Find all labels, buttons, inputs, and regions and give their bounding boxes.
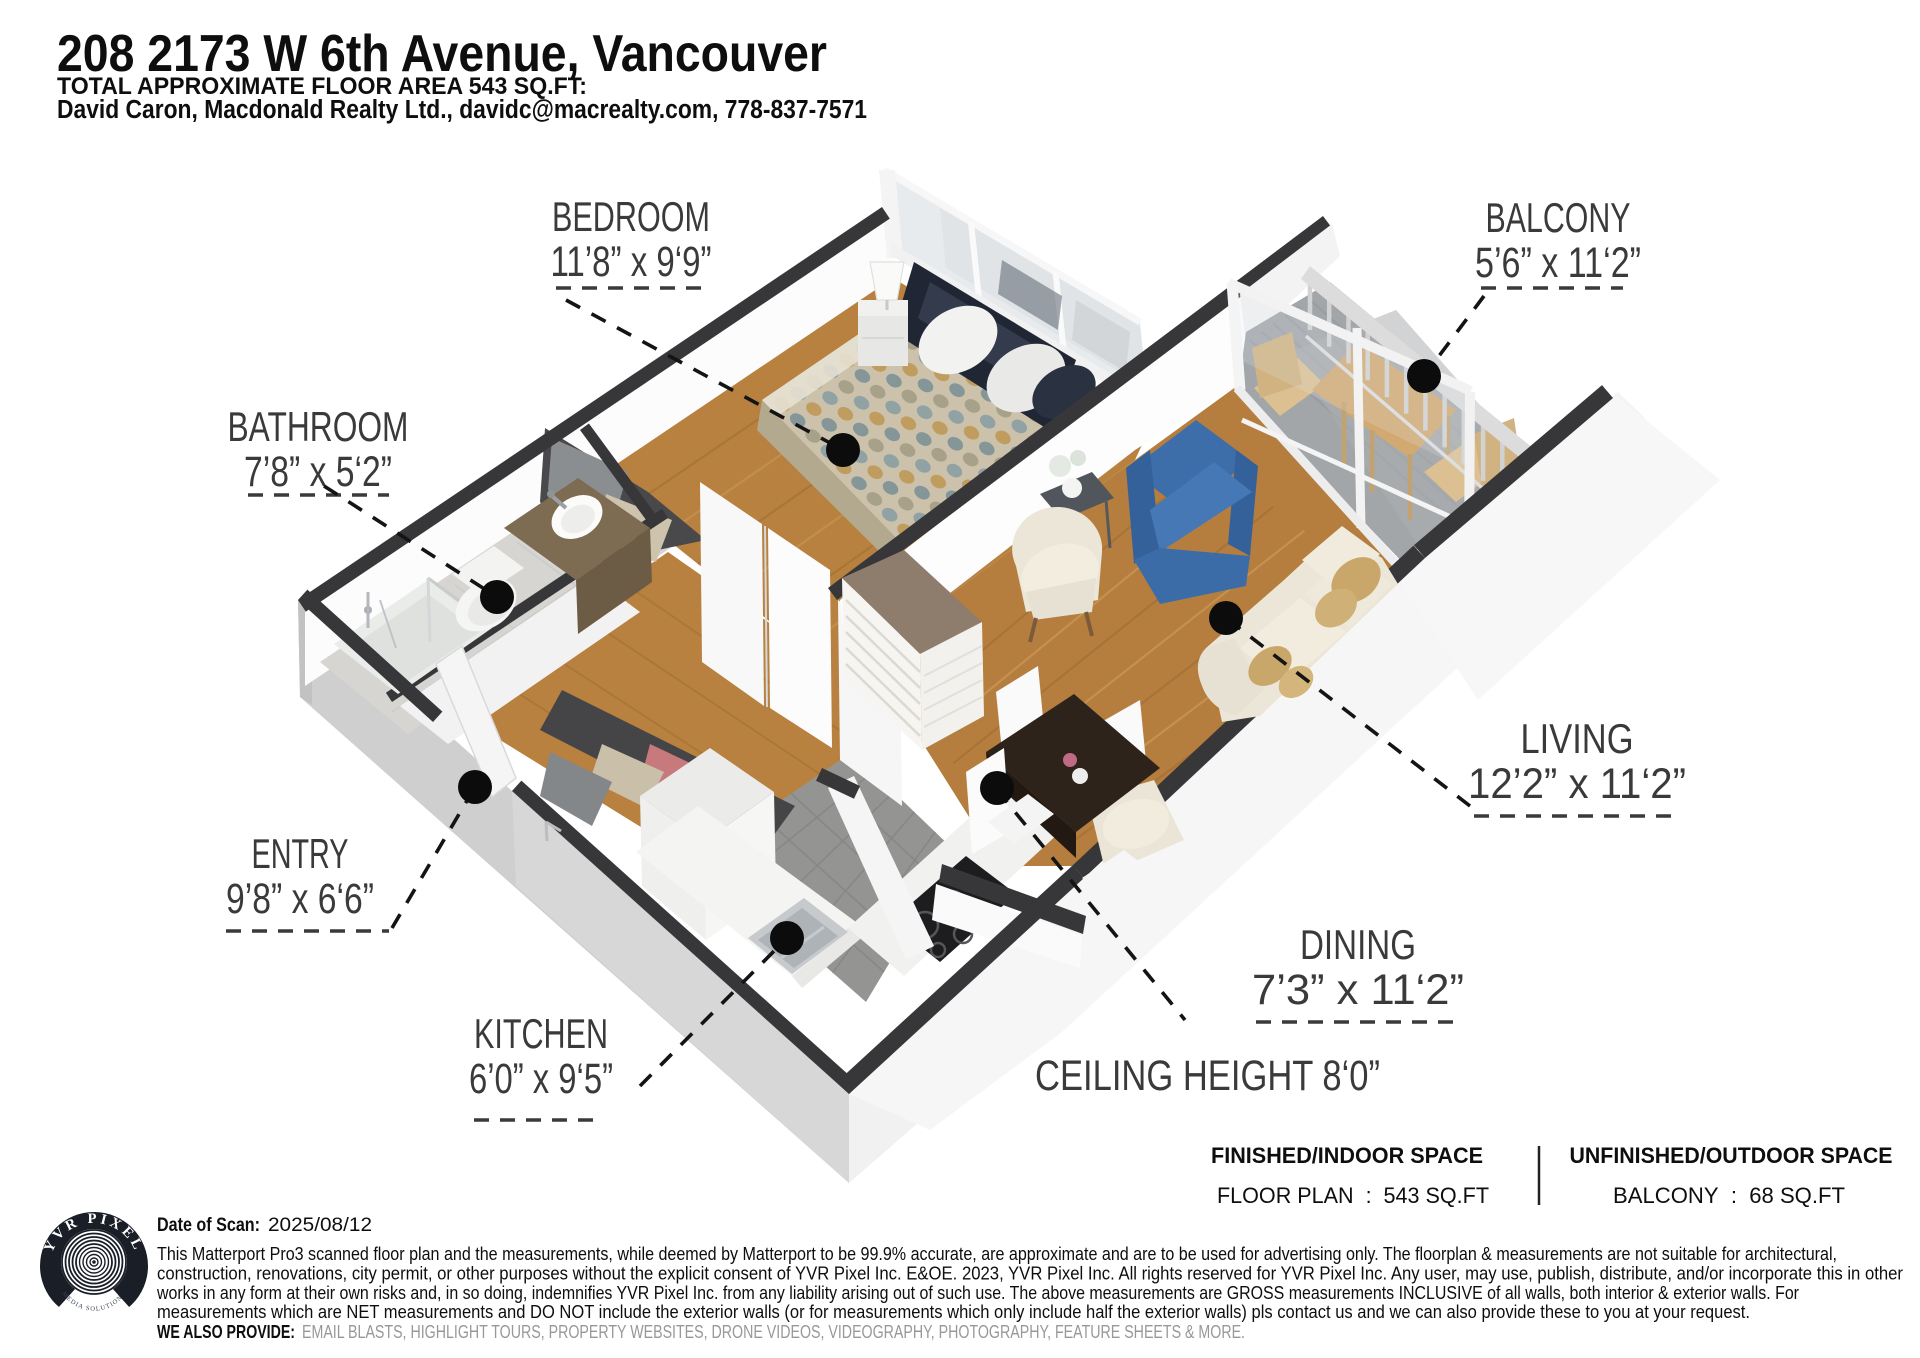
svg-text:FLOOR PLAN : 543 SQ.FT: FLOOR PLAN : 543 SQ.FT — [1217, 1183, 1489, 1208]
svg-text:This Matterport Pro3 scanned f: This Matterport Pro3 scanned floor plan … — [157, 1244, 1837, 1264]
svg-text:LIVING: LIVING — [1521, 715, 1634, 762]
svg-text:CEILING HEIGHT 8‘0”: CEILING HEIGHT 8‘0” — [1035, 1052, 1380, 1100]
svg-text:KITCHEN: KITCHEN — [474, 1010, 608, 1057]
svg-text:WE ALSO PROVIDE:: WE ALSO PROVIDE: — [157, 1322, 295, 1342]
svg-text:DINING: DINING — [1300, 921, 1416, 968]
svg-text:11’8” x 9‘9”: 11’8” x 9‘9” — [551, 238, 712, 286]
svg-text:ENTRY: ENTRY — [252, 830, 349, 877]
svg-text:5’6” x 11‘2”: 5’6” x 11‘2” — [1475, 239, 1641, 287]
svg-text:7’3” x 11‘2”: 7’3” x 11‘2” — [1252, 966, 1464, 1014]
svg-text:Date of Scan:: Date of Scan: — [157, 1215, 260, 1236]
svg-text:7’8” x 5‘2”: 7’8” x 5‘2” — [244, 448, 392, 496]
svg-text:measurements which are NET mea: measurements which are NET measurements … — [157, 1302, 1750, 1322]
svg-text:UNFINISHED/OUTDOOR SPACE: UNFINISHED/OUTDOOR SPACE — [1570, 1143, 1893, 1168]
svg-text:BALCONY: BALCONY — [1486, 194, 1631, 241]
svg-text:12’2” x 11‘2”: 12’2” x 11‘2” — [1468, 760, 1686, 808]
svg-text:construction, renovations, cit: construction, renovations, city permit, … — [157, 1263, 1903, 1283]
svg-text:BALCONY : 68 SQ.FT: BALCONY : 68 SQ.FT — [1613, 1183, 1845, 1208]
svg-text:FINISHED/INDOOR SPACE: FINISHED/INDOOR SPACE — [1211, 1143, 1483, 1168]
svg-text:David Caron, Macdonald Realty: David Caron, Macdonald Realty Ltd., davi… — [57, 96, 867, 124]
svg-text:BEDROOM: BEDROOM — [552, 193, 710, 240]
svg-text:9’8” x 6‘6”: 9’8” x 6‘6” — [226, 875, 374, 923]
svg-text:BATHROOM: BATHROOM — [228, 403, 409, 450]
svg-text:works in any form at their own: works in any form at their own risks and… — [156, 1283, 1799, 1303]
svg-text:2025/08/12: 2025/08/12 — [268, 1215, 372, 1236]
svg-text:EMAIL BLASTS, HIGHLIGHT TOURS,: EMAIL BLASTS, HIGHLIGHT TOURS, PROPERTY … — [302, 1322, 1245, 1342]
svg-text:MEDIA SOLUTIONS: MEDIA SOLUTIONS — [0, 0, 125, 1313]
svg-text:6’0” x 9‘5”: 6’0” x 9‘5” — [469, 1055, 613, 1103]
